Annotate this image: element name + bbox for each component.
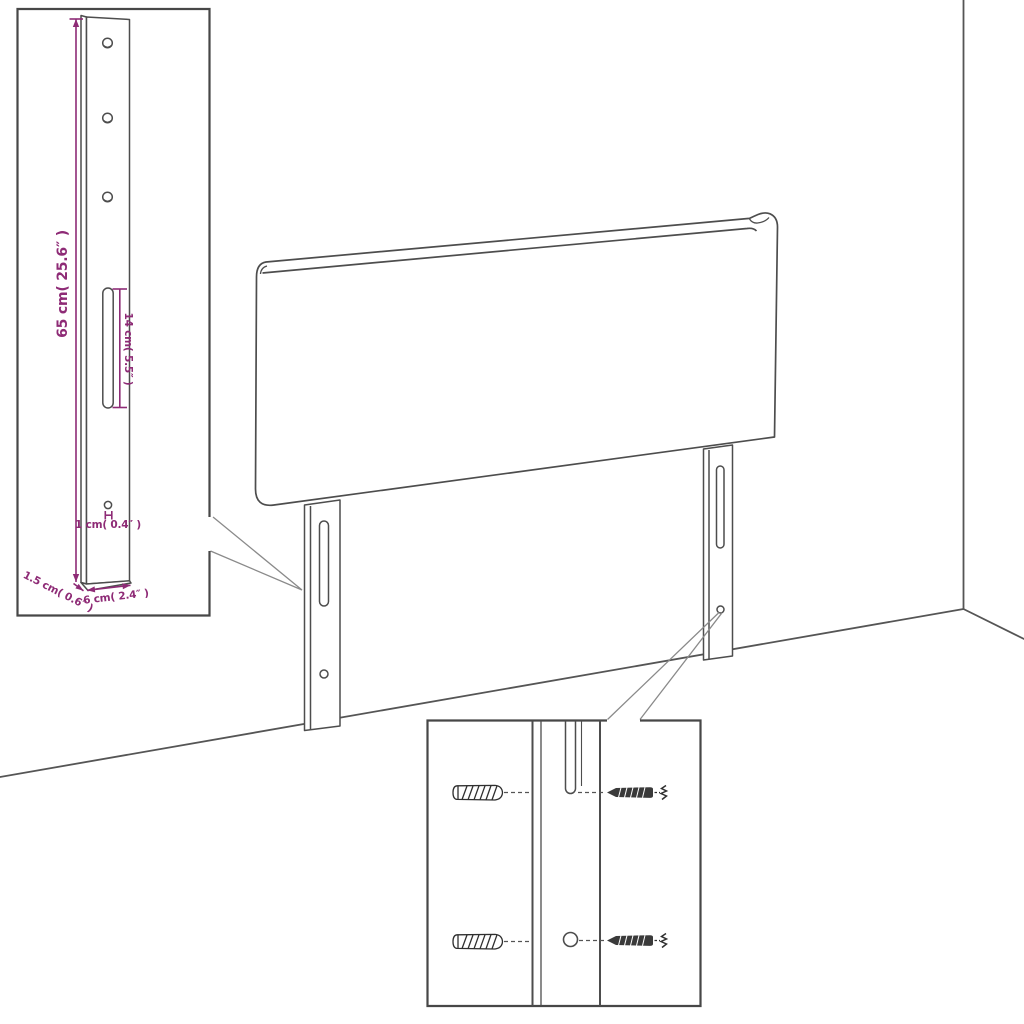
bracket-side-face [81, 16, 87, 585]
floor-line-right [964, 609, 1024, 639]
leader-to-left-leg [211, 517, 303, 590]
callout-leader-lines [211, 517, 723, 720]
right-leg [704, 445, 733, 660]
headboard-outline [256, 213, 778, 505]
left-leg-hole [320, 670, 328, 678]
left-leg [305, 500, 341, 731]
dimension-label-hole: 1 cm( 0.4″ ) [75, 519, 141, 531]
leg-strip-hole [564, 933, 578, 947]
headboard-panel [256, 213, 778, 505]
product-diagram-headboard: 65 cm( 25.6″ ) 14 cm( 5.5″ ) 1 cm( 0.4″ … [0, 0, 1024, 1024]
diagram-line-art [0, 0, 1024, 1024]
right-leg-slot [717, 466, 725, 548]
wall-plug-icon [453, 934, 503, 949]
dimension-label-slot: 14 cm( 5.5″ ) [122, 312, 134, 385]
bracket-slot [103, 288, 113, 408]
wall-plug-icon [453, 785, 503, 800]
dimension-label-height: 65 cm( 25.6″ ) [55, 230, 71, 338]
bracket-small-hole [104, 501, 111, 508]
detail-inset-mounting [428, 721, 701, 1007]
right-leg-hole [717, 606, 724, 613]
left-leg-slot [320, 521, 329, 606]
inset-mounting-background [428, 721, 701, 1007]
